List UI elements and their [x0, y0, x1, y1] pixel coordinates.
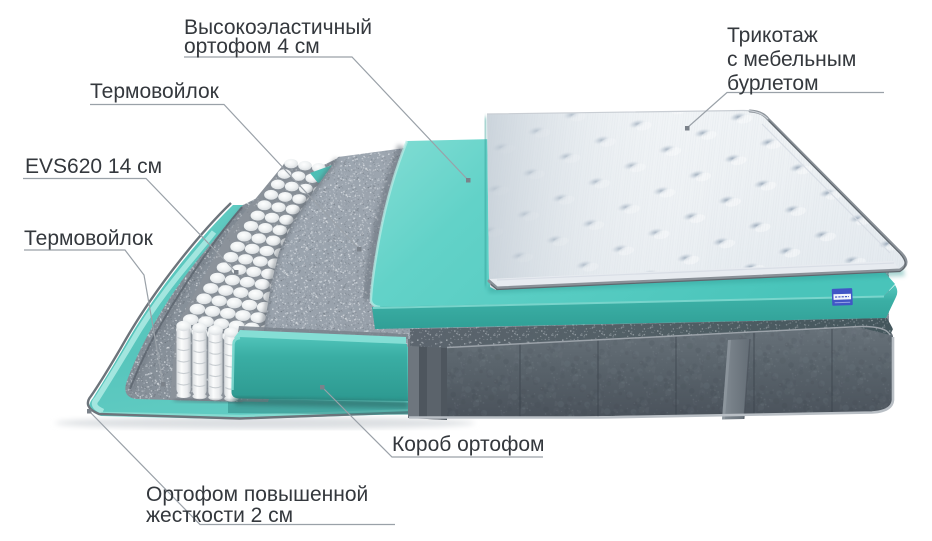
- svg-text:Термовойлок: Термовойлок: [90, 80, 220, 103]
- svg-text:жесткости 2 см: жесткости 2 см: [146, 504, 293, 527]
- svg-text:Термовойлок: Термовойлок: [24, 227, 154, 250]
- svg-text:EVS620 14 см: EVS620 14 см: [25, 155, 162, 178]
- svg-text:Ортофом повышенной: Ортофом повышенной: [146, 483, 368, 506]
- svg-text:бурлетом: бурлетом: [727, 72, 819, 95]
- svg-text:Короб ортофом: Короб ортофом: [392, 433, 545, 456]
- svg-text:с мебельным: с мебельным: [727, 48, 856, 71]
- svg-text:Трикотаж: Трикотаж: [727, 24, 818, 47]
- svg-text:ортофом 4 см: ортофом 4 см: [184, 35, 320, 58]
